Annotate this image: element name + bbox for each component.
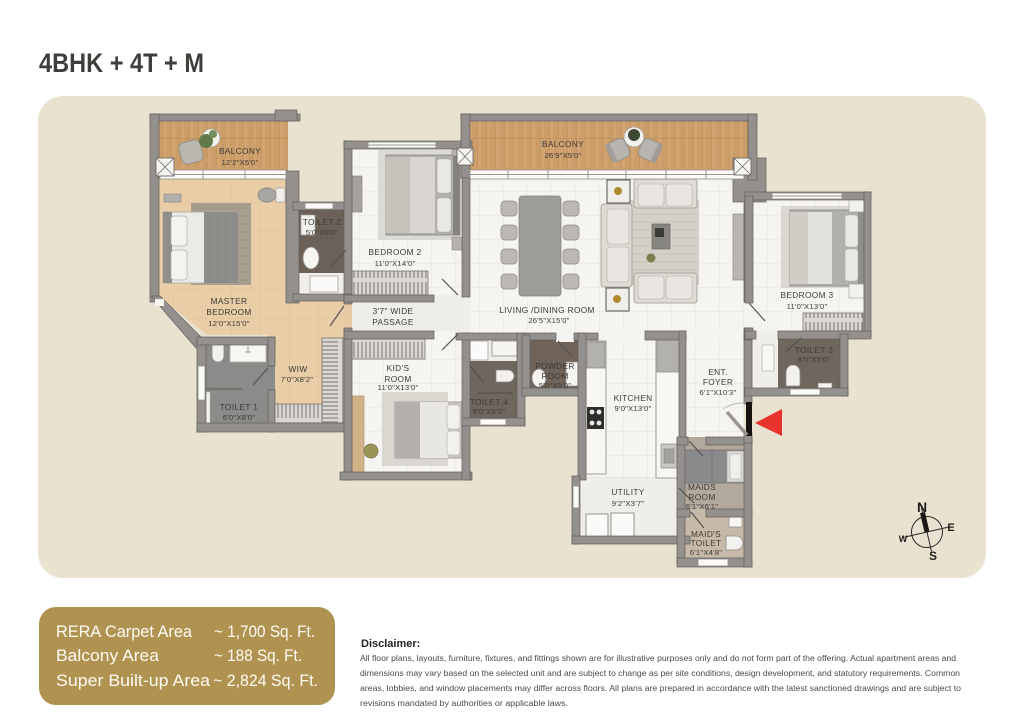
- svg-text:Disclaimer:: Disclaimer:: [361, 638, 420, 650]
- svg-text:12'2"X5'0": 12'2"X5'0": [222, 158, 259, 167]
- svg-text:6'1"X10'3": 6'1"X10'3": [700, 388, 737, 397]
- svg-text:S: S: [929, 549, 937, 563]
- svg-text:MAIDS: MAIDS: [688, 482, 716, 492]
- svg-text:LIVING /DINING ROOM: LIVING /DINING ROOM: [499, 305, 595, 315]
- svg-text:WIW: WIW: [288, 364, 307, 374]
- svg-text:Balcony Area: Balcony Area: [56, 647, 160, 665]
- svg-text:BALCONY: BALCONY: [219, 146, 261, 156]
- svg-text:UTILITY: UTILITY: [611, 487, 644, 497]
- svg-text:5'0"X5'0": 5'0"X5'0": [539, 381, 571, 390]
- svg-text:TOILET: TOILET: [691, 538, 722, 548]
- svg-text:11'0"X14'0": 11'0"X14'0": [375, 259, 416, 268]
- svg-text:BEDROOM 3: BEDROOM 3: [781, 290, 834, 300]
- svg-text:~ 2,824 Sq. Ft.: ~ 2,824 Sq. Ft.: [213, 672, 318, 690]
- svg-text:7'0"X8'2": 7'0"X8'2": [281, 375, 313, 384]
- svg-text:dimensions may vary based on t: dimensions may vary based on the selecte…: [360, 668, 960, 678]
- svg-text:revisions mandated by authorit: revisions mandated by authorities or app…: [360, 698, 568, 708]
- svg-text:11'0"X13'0": 11'0"X13'0": [378, 383, 419, 392]
- svg-text:TOILET 2: TOILET 2: [303, 217, 341, 227]
- svg-text:6'1"X4'8": 6'1"X4'8": [690, 548, 722, 557]
- svg-text:ROOM: ROOM: [688, 492, 715, 502]
- svg-text:BEDROOM 2: BEDROOM 2: [369, 247, 422, 257]
- svg-text:N: N: [917, 499, 927, 515]
- svg-text:~ 188 Sq. Ft.: ~ 188 Sq. Ft.: [214, 647, 302, 665]
- svg-text:FOYER: FOYER: [703, 377, 733, 387]
- svg-text:W: W: [899, 534, 908, 544]
- svg-text:TOILET 3: TOILET 3: [795, 345, 833, 355]
- svg-text:All floor plans, layouts, furn: All floor plans, layouts, furniture, fix…: [360, 653, 956, 663]
- svg-text:RERA Carpet Area: RERA Carpet Area: [56, 623, 193, 641]
- svg-text:MASTER: MASTER: [211, 296, 248, 306]
- svg-text:26'5"X15'0": 26'5"X15'0": [528, 316, 569, 325]
- svg-text:4BHK + 4T + M: 4BHK + 4T + M: [39, 48, 204, 78]
- svg-text:11'0"X13'0": 11'0"X13'0": [787, 302, 828, 311]
- svg-text:9'0"X13'0": 9'0"X13'0": [615, 404, 652, 413]
- svg-text:5'0"X8'0": 5'0"X8'0": [473, 407, 505, 416]
- svg-text:26'9"X5'0": 26'9"X5'0": [545, 151, 582, 160]
- svg-text:TOILET 1: TOILET 1: [220, 402, 258, 412]
- svg-text:3'7" WIDE: 3'7" WIDE: [373, 306, 414, 316]
- svg-text:6'0"X8'0": 6'0"X8'0": [223, 413, 255, 422]
- svg-text:12'0"X15'0": 12'0"X15'0": [208, 319, 249, 328]
- svg-text:9'2"X3'7": 9'2"X3'7": [612, 499, 644, 508]
- svg-text:8'0"X5'0": 8'0"X5'0": [798, 355, 830, 364]
- svg-text:BEDROOM: BEDROOM: [206, 307, 251, 317]
- svg-text:areas, lobbies, and window pla: areas, lobbies, and window placements ma…: [360, 683, 961, 693]
- svg-text:E: E: [947, 522, 954, 534]
- svg-text:6'1"X6'1": 6'1"X6'1": [686, 502, 718, 511]
- svg-text:ENT.: ENT.: [708, 367, 727, 377]
- svg-text:5'0"X8'0": 5'0"X8'0": [306, 228, 338, 237]
- svg-text:BALCONY: BALCONY: [542, 139, 584, 149]
- svg-text:ROOM: ROOM: [541, 371, 568, 381]
- svg-text:PASSAGE: PASSAGE: [372, 317, 414, 327]
- svg-text:~ 1,700 Sq. Ft.: ~ 1,700 Sq. Ft.: [214, 623, 315, 641]
- svg-text:POWDER: POWDER: [535, 361, 574, 371]
- svg-text:Super Built-up Area: Super Built-up Area: [56, 672, 211, 690]
- svg-text:KITCHEN: KITCHEN: [614, 393, 653, 403]
- svg-text:TOILET 4: TOILET 4: [470, 397, 508, 407]
- svg-text:KID'S: KID'S: [387, 363, 410, 373]
